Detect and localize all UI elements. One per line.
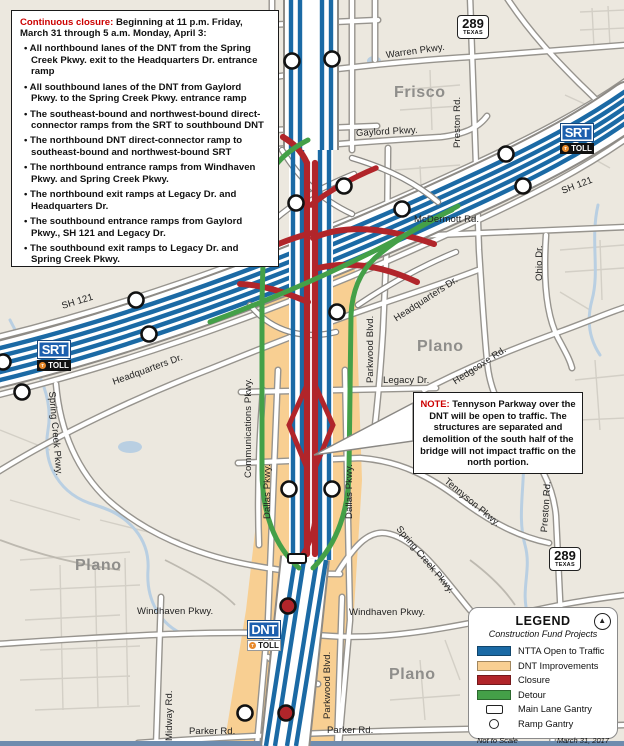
city-label-plano-west: Plano <box>75 557 122 575</box>
closure-bullet: The southbound entrance ramps from Gaylo… <box>24 216 270 238</box>
legend-item-dnt-improvements: DNT Improvements <box>477 659 609 674</box>
legend: LEGEND ▲ Construction Fund Projects NTTA… <box>468 607 618 739</box>
toll-text: TOLL <box>571 144 592 153</box>
closure-bullet: The northbound exit ramps at Legacy Dr. … <box>24 189 270 211</box>
city-label-plano-east: Plano <box>417 338 464 356</box>
closure-bullet: The northbound entrance ramps from Windh… <box>24 162 270 184</box>
srt-toll-logo-west: SRT TTOLL <box>37 340 71 371</box>
road-label-ohio: Ohio Dr. <box>534 245 545 281</box>
road-label-parker-west: Parker Rd. <box>189 726 235 737</box>
city-label-plano-south: Plano <box>389 666 436 684</box>
road-label-parkwood-south: Parkwood Blvd. <box>322 652 333 719</box>
tolltag-icon: T <box>562 145 569 152</box>
north-arrow-icon: ▲ <box>594 613 611 630</box>
city-label-frisco: Frisco <box>394 84 446 102</box>
legend-item-closure: Closure <box>477 673 609 688</box>
legend-item-main-lane-gantry: Main Lane Gantry <box>477 702 609 717</box>
road-label-dallas-east: Dallas Pkwy. <box>344 464 355 519</box>
note-box: NOTE: Tennyson Parkway over the DNT will… <box>413 392 583 474</box>
closure-bullet: All southbound lanes of the DNT from Gay… <box>24 82 270 104</box>
dnt-logo-text: DNT <box>247 620 281 639</box>
route-number: 289 <box>458 17 488 30</box>
toll-text: TOLL <box>258 641 279 650</box>
road-label-mcdermott: McDermott Rd. <box>414 214 479 225</box>
pond <box>118 441 142 453</box>
closure-swatch <box>477 675 511 685</box>
closure-bullet-list: All northbound lanes of the DNT from the… <box>20 43 270 265</box>
detour-swatch <box>477 690 511 700</box>
closure-title: Continuous closure: <box>20 17 113 28</box>
legend-title: LEGEND <box>515 614 570 628</box>
closure-bullet: The northbound DNT direct-connector ramp… <box>24 135 270 157</box>
closure-bullet: The southbound exit ramps to Legacy Dr. … <box>24 243 270 265</box>
legend-item-ramp-gantry: Ramp Gantry <box>477 717 609 732</box>
closure-bullet: The southeast-bound and northwest-bound … <box>24 109 270 131</box>
dnt-toll-logo: DNT TTOLL <box>247 620 281 651</box>
legend-item-ntta: NTTA Open to Traffic <box>477 644 609 659</box>
road-label-windhaven-west: Windhaven Pkwy. <box>137 606 213 617</box>
legend-subtitle: Construction Fund Projects <box>477 629 609 639</box>
route-shield-289-south: 289 TEXAS <box>549 547 581 571</box>
srt-logo-text: SRT <box>37 340 71 359</box>
main-lane-gantry <box>288 554 306 563</box>
route-number: 289 <box>550 549 580 562</box>
ramp-gantry-icon <box>489 719 499 729</box>
road-label-communications: Communications Pkwy. <box>243 378 254 478</box>
route-shield-289-north: 289 TEXAS <box>457 15 489 39</box>
tolltag-icon: T <box>249 642 256 649</box>
road-label-legacy: Legacy Dr. <box>383 375 429 386</box>
road-label-windhaven-east: Windhaven Pkwy. <box>349 607 425 618</box>
legend-date: March 31, 2017 <box>557 736 609 745</box>
road-label-parkwood-mid: Parkwood Blvd. <box>365 316 376 383</box>
road-label-preston-north: Preston Rd. <box>452 97 463 148</box>
main-lane-gantry-icon <box>486 705 503 714</box>
ntta-blue-swatch <box>477 646 511 656</box>
legend-item-detour: Detour <box>477 688 609 703</box>
closure-bullet: All northbound lanes of the DNT from the… <box>24 43 270 77</box>
closure-info-box: Continuous closure: Beginning at 11 p.m.… <box>11 10 279 267</box>
tolltag-icon: T <box>39 362 46 369</box>
map-canvas: Warren Pkwy. Gaylord Pkwy. Preston Rd. P… <box>0 0 624 746</box>
road-label-midway: Midway Rd. <box>164 690 175 741</box>
srt-toll-logo-east: SRT TTOLL <box>560 123 594 154</box>
toll-text: TOLL <box>48 361 69 370</box>
dnt-improvements-swatch <box>477 661 511 671</box>
note-label: NOTE: <box>420 398 449 409</box>
legend-not-to-scale: Not to Scale <box>477 736 518 745</box>
road-label-dallas-west: Dallas Pkwy. <box>262 464 273 519</box>
road-label-parker-east: Parker Rd. <box>327 725 373 736</box>
srt-logo-text: SRT <box>560 123 594 142</box>
